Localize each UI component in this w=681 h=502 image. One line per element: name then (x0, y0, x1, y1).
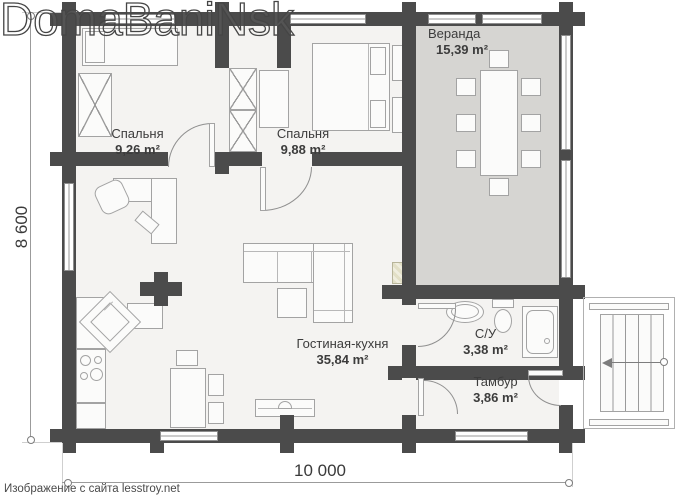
chair (208, 402, 224, 424)
stairs-landing (589, 419, 669, 426)
bed-pillow (370, 100, 386, 128)
dresser (259, 70, 289, 128)
stairs-landing (589, 303, 669, 310)
stove-burner (80, 372, 88, 380)
wall-log-end (50, 152, 62, 166)
wall-log-end (215, 166, 229, 174)
stove-burner (90, 368, 103, 381)
wall-bedrooms (213, 152, 262, 166)
room-name: С/У (438, 326, 533, 342)
bed-headboard-line (368, 44, 369, 130)
room-area: 3,86 m² (448, 390, 543, 406)
room-label-bathroom: С/У 3,38 m² (438, 326, 533, 359)
veranda-table (480, 70, 518, 176)
wall-log-end (62, 443, 76, 453)
room-area: 3,38 m² (438, 342, 533, 358)
room-area: 9,88 m² (258, 142, 348, 158)
door-leaf-bedroom2 (260, 167, 266, 211)
dim-endpoint (565, 479, 573, 487)
wall-cross-stub (154, 272, 168, 306)
wall-log-end (150, 443, 164, 453)
wall-log-end (280, 443, 294, 453)
chair (456, 114, 476, 132)
sofa-backrest-line (244, 251, 350, 252)
closet (229, 110, 257, 152)
chair (456, 150, 476, 168)
wall-window-divider (559, 150, 573, 160)
chair (521, 114, 541, 132)
dim-extension (62, 443, 63, 487)
wall-log-end (382, 285, 402, 299)
chair (521, 78, 541, 96)
window (160, 431, 218, 441)
floor-plan: Спальня 9,26 m² Спальня 9,88 m² Веранда … (0, 0, 681, 502)
window (482, 14, 542, 24)
wall-log-end (280, 415, 294, 429)
door-leaf-bedroom1 (209, 123, 215, 167)
room-area: 15,39 m² (428, 42, 528, 58)
kitchen-cabinet (76, 403, 106, 429)
window (561, 35, 571, 150)
room-name: Спальня (95, 126, 180, 142)
chair (176, 350, 198, 366)
wall-log-end (50, 429, 62, 443)
room-name: Спальня (258, 126, 348, 142)
chair (489, 178, 509, 196)
watermark: DomaBaniNsk (0, 0, 294, 46)
dim-label-width: 10 000 (260, 461, 380, 481)
wall-log-end (573, 12, 585, 26)
stove-burner (94, 356, 102, 364)
room-label-tambour: Тамбур 3,86 m² (448, 374, 543, 407)
window (64, 183, 74, 271)
room-name: Веранда (428, 26, 528, 42)
room-label-veranda: Веранда 15,39 m² (428, 26, 528, 59)
room-label-bedroom2: Спальня 9,88 m² (258, 126, 348, 159)
coffee-table (277, 288, 307, 318)
room-name: Тамбур (448, 374, 543, 390)
tv-dome (278, 401, 292, 409)
chair (521, 150, 541, 168)
dim-endpoint (27, 436, 35, 444)
window (455, 431, 528, 441)
toilet-tank (492, 299, 514, 308)
wall-veranda (402, 345, 416, 378)
wall-veranda-floor (416, 285, 573, 299)
closet (229, 68, 257, 110)
desk (151, 178, 177, 244)
stove-burner (80, 355, 91, 366)
stairs-arrow-line (608, 362, 664, 363)
dining-table (170, 368, 206, 428)
wall-log-end (402, 443, 416, 453)
sofa-seat-line (277, 252, 278, 282)
wall-veranda (402, 26, 416, 305)
room-name: Гостиная-кухня (285, 336, 400, 352)
room-label-living: Гостиная-кухня 35,84 m² (285, 336, 400, 369)
sofa-corner (313, 243, 353, 323)
sofa-armrest-line (314, 310, 352, 311)
attribution-text: Изображение с сайта lesstroy.net (4, 483, 180, 495)
wall-veranda (402, 415, 416, 429)
room-area: 9,26 m² (95, 142, 180, 158)
door-leaf-tambour (418, 378, 424, 416)
door-leaf-bathroom (418, 303, 456, 309)
stairs-arrow-head (602, 358, 612, 368)
room-area: 35,84 m² (285, 352, 400, 368)
wall-log-end (559, 443, 573, 453)
window (561, 160, 571, 278)
sofa-seat-line (311, 252, 312, 282)
dim-label-height: 8 600 (12, 187, 30, 267)
bed-pillow (370, 47, 386, 75)
stairs-arrow-origin (660, 358, 668, 366)
wall-log-end (573, 429, 585, 443)
wall-log-end (402, 2, 416, 12)
shower-drain (544, 338, 550, 344)
chair (456, 78, 476, 96)
wall-log-end (559, 2, 573, 12)
chair (208, 374, 224, 396)
window (290, 14, 366, 24)
window (428, 14, 476, 24)
room-label-bedroom1: Спальня 9,26 m² (95, 126, 180, 159)
